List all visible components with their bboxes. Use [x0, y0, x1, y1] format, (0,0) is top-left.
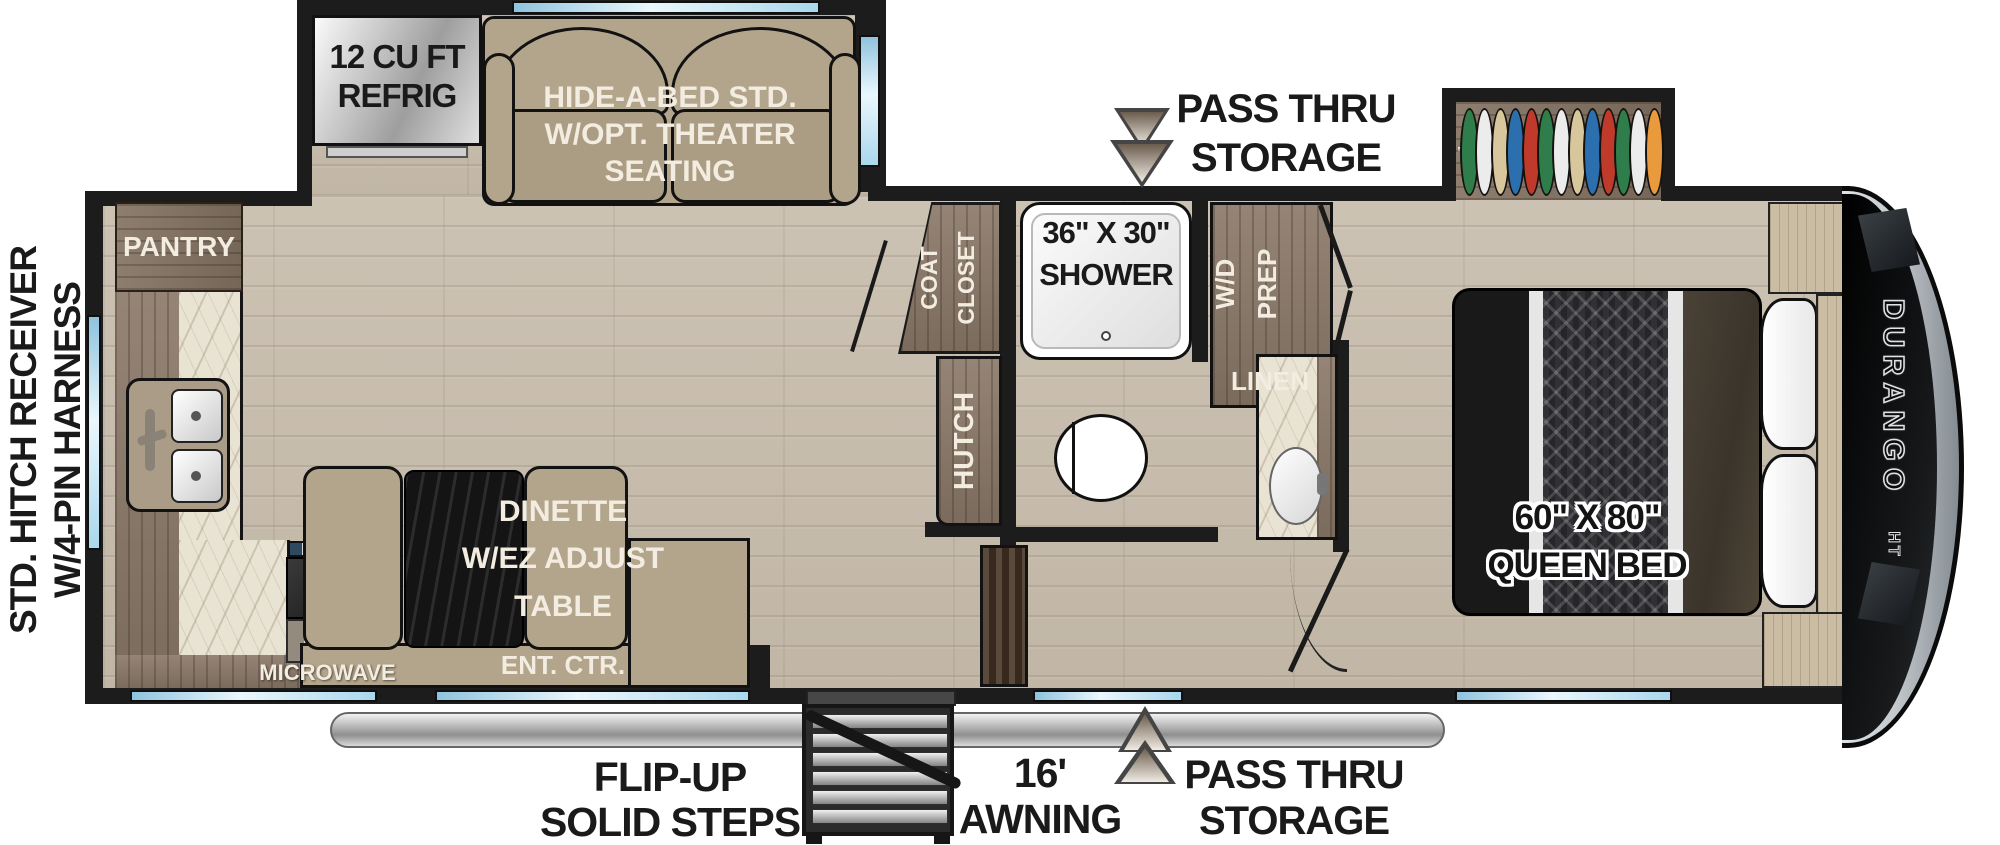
wall-segment	[748, 645, 770, 690]
sink-drain	[191, 411, 201, 421]
shower-line2: SHOWER	[1026, 254, 1186, 296]
wd-prep-line1: W/D	[1205, 209, 1247, 359]
step-tread	[812, 809, 948, 824]
shower-drain	[1101, 331, 1111, 341]
wd-prep-line2: PREP	[1247, 209, 1289, 359]
pass-thru-top-label: PASS THRU STORAGE	[1156, 85, 1416, 183]
toilet-tank-line	[1072, 422, 1075, 494]
shower-label: 36" X 30" SHOWER	[1026, 212, 1186, 296]
dinette-line1: DINETTE	[428, 488, 698, 535]
refrig-line2: REFRIG	[312, 77, 482, 116]
sofa-line3: SEATING	[520, 154, 820, 191]
sofa-arm	[483, 53, 515, 205]
window	[1455, 690, 1672, 702]
sofa-label: HIDE-A-BED STD. W/OPT. THEATER SEATING	[520, 80, 820, 191]
refrigerator-label: 12 CU FT REFRIG	[312, 38, 482, 116]
window	[1033, 690, 1183, 702]
window	[512, 1, 820, 14]
wall-segment	[297, 0, 312, 206]
brand-sub-logo: HT	[1877, 515, 1903, 575]
dinette-bench	[303, 466, 403, 650]
coat-closet-label: COAT CLOSET	[911, 213, 993, 343]
sofa-line1: HIDE-A-BED STD.	[520, 80, 820, 117]
awning-line2: AWNING	[945, 797, 1135, 843]
awning-line1: 16'	[945, 751, 1135, 797]
hutch-label: HUTCH	[947, 366, 989, 516]
ent-ctr-label: ENT. CTR.	[468, 650, 658, 681]
sofa-line2: W/OPT. THEATER	[520, 117, 820, 154]
sofa-arm	[829, 53, 861, 205]
refrig-line1: 12 CU FT	[312, 38, 482, 77]
hanger-row	[1460, 104, 1663, 198]
dinette-line3: TABLE	[428, 583, 698, 630]
step-tread	[812, 790, 948, 805]
wd-prep-label: W/D PREP	[1205, 209, 1293, 359]
refrigerator-vent	[326, 146, 468, 158]
kitchen-sink	[126, 378, 230, 512]
kitchen-counter-corner	[179, 540, 290, 658]
rv-floorplan: STD. HITCH RECEIVER W/4-PIN HARNESS 12 C…	[0, 0, 2000, 845]
dinette-label: DINETTE W/EZ ADJUST TABLE	[428, 488, 698, 630]
hitch-label-line1: STD. HITCH RECEIVER	[2, 160, 46, 720]
hitch-label: STD. HITCH RECEIVER W/4-PIN HARNESS	[2, 160, 92, 720]
awning-label: 16' AWNING	[945, 751, 1135, 843]
pass-thru-top-line2: STORAGE	[1156, 134, 1416, 183]
interior-entry-steps	[980, 545, 1028, 687]
queen-bed-line2: QUEEN BED	[1437, 542, 1737, 590]
bed-pillow	[1760, 298, 1818, 450]
hitch-label-line2: W/4-PIN HARNESS	[46, 160, 90, 720]
faucet-icon	[1317, 473, 1327, 495]
wall-segment	[868, 186, 1445, 201]
pass-thru-bottom-line1: PASS THRU	[1165, 752, 1423, 798]
toilet	[1054, 414, 1148, 502]
dinette-line2: W/EZ ADJUST	[428, 535, 698, 582]
brand-logo: DURANGO	[1870, 238, 1910, 558]
flip-up-steps-label: FLIP-UP SOLID STEPS	[525, 755, 815, 845]
window	[859, 35, 880, 167]
steps-line2: SOLID STEPS	[525, 800, 815, 845]
vanity-sink	[1269, 447, 1323, 525]
coat-closet-line1: COAT	[911, 213, 948, 343]
queen-bed-label: 60" X 80" QUEEN BED	[1437, 494, 1737, 591]
shower-line1: 36" X 30"	[1026, 212, 1186, 254]
queen-bed-line1: 60" X 80"	[1437, 494, 1737, 542]
bed-pillow	[1760, 454, 1818, 608]
wall-segment	[1442, 88, 1675, 102]
window	[435, 690, 750, 702]
pass-thru-top-line1: PASS THRU	[1156, 85, 1416, 134]
pantry-label: PANTRY	[115, 230, 243, 264]
clothes-hanger	[1645, 108, 1664, 196]
wall-segment	[1016, 527, 1218, 542]
wall-segment	[1442, 88, 1456, 201]
sink-drain	[191, 471, 201, 481]
linen-label: LINEN	[1208, 366, 1332, 397]
wall-segment	[1000, 200, 1016, 545]
wall-segment	[1672, 186, 1850, 201]
microwave-label: MICROWAVE	[205, 660, 450, 686]
pass-thru-bottom-label: PASS THRU STORAGE	[1165, 752, 1423, 845]
pass-thru-bottom-line2: STORAGE	[1165, 798, 1423, 844]
steps-line1: FLIP-UP	[525, 755, 815, 800]
window	[130, 690, 377, 702]
coat-closet-line2: CLOSET	[948, 213, 985, 343]
